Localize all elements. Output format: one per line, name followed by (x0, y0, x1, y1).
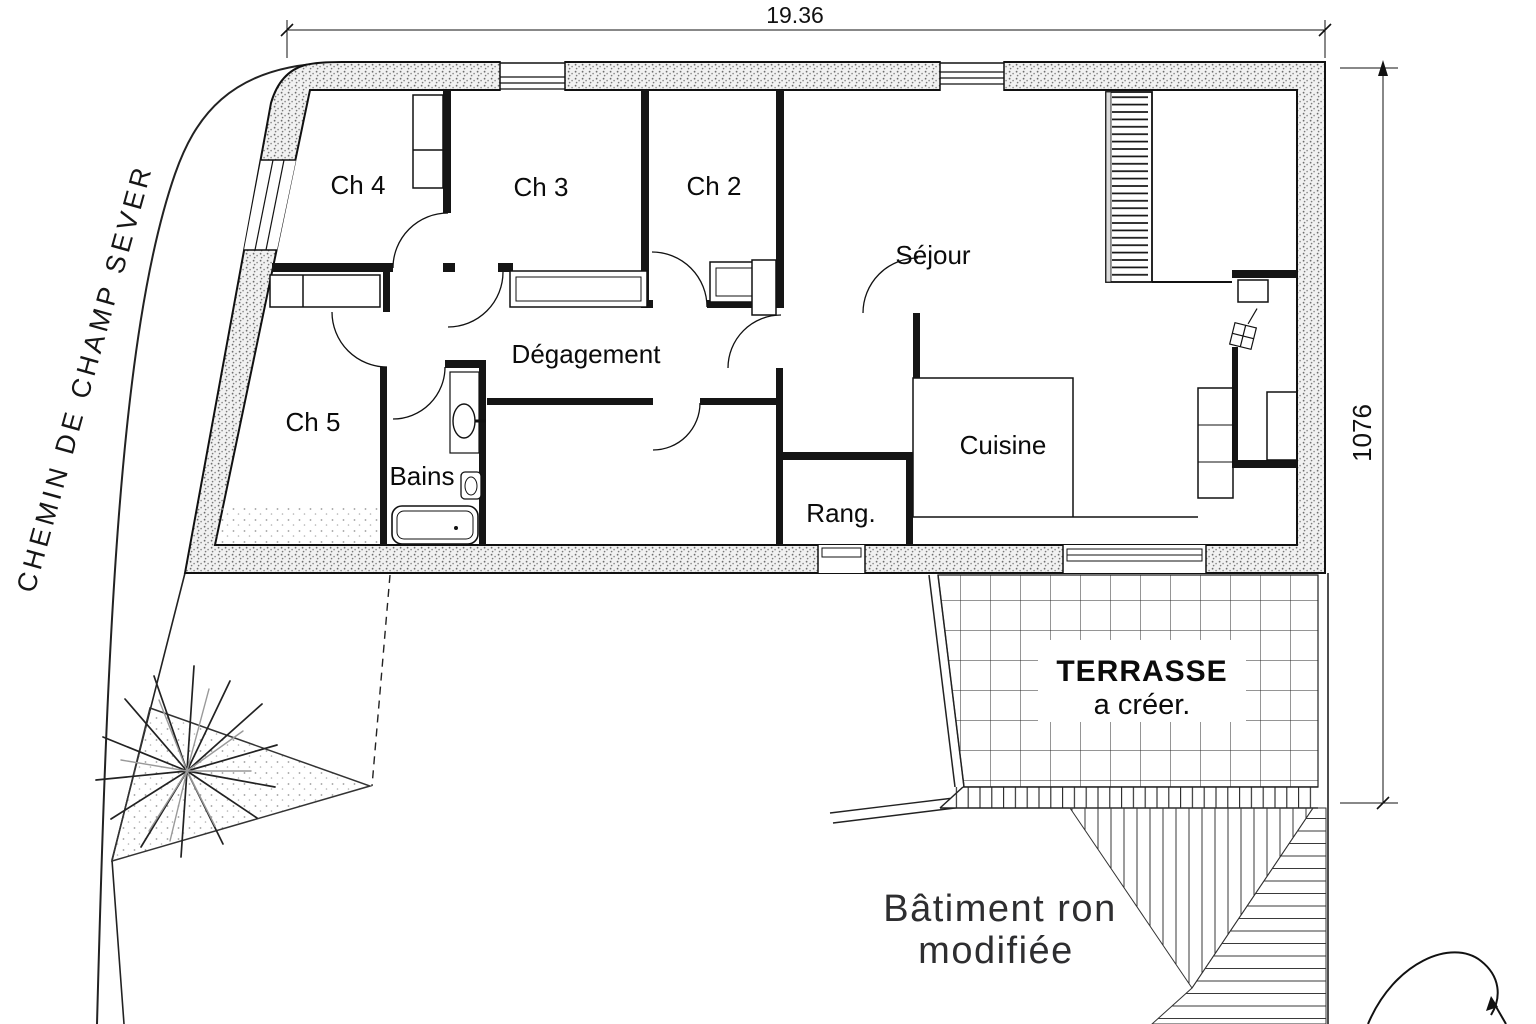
door-arcs (332, 213, 918, 450)
room-label-rang: Rang. (806, 498, 875, 528)
sliding-door-bottom (1063, 545, 1206, 573)
door-arc-ch2 (652, 252, 707, 307)
building (185, 61, 1325, 573)
sink-icon (453, 404, 475, 438)
door-arc-south-room (653, 403, 700, 450)
plot-boundary-dashed (372, 575, 390, 786)
kitchen-fittings (913, 280, 1297, 517)
dimension-right-label: 1076 (1347, 404, 1377, 462)
dimension-top-label: 19.36 (766, 2, 824, 28)
room-label-cuisine: Cuisine (960, 430, 1047, 460)
terrace-label: TERRASSE (1056, 655, 1227, 688)
room-label-bains: Bains (389, 461, 454, 491)
floor-plan-page: 19.36 1076 CHEMIN DE CHAMP SEVER Ch 4 Ch… (0, 0, 1536, 1024)
room-label-sejour: Séjour (895, 240, 970, 270)
floor-plan-drawing: 19.36 1076 CHEMIN DE CHAMP SEVER Ch 4 Ch… (0, 0, 1536, 1024)
garden-bed (96, 666, 370, 861)
note-line2: modifiée (918, 930, 1074, 972)
door-arc-sejour (728, 315, 781, 368)
staircase (1106, 92, 1152, 282)
room-label-ch5: Ch 5 (286, 407, 341, 437)
room-label-degagement: Dégagement (512, 339, 662, 369)
note-line1: Bâtiment ron (883, 888, 1116, 930)
room-label-ch4: Ch 4 (331, 170, 386, 200)
window-top-2 (940, 61, 1004, 91)
entry-door-bottom (818, 545, 865, 573)
room-label-ch3: Ch 3 (514, 172, 569, 202)
exterior-wall (185, 62, 1325, 573)
room-label-ch2: Ch 2 (687, 171, 742, 201)
garden-path-line-2 (833, 807, 963, 823)
door-arc-bains (393, 367, 445, 419)
boiler-icon (1230, 304, 1261, 349)
terrace-sublabel: a créer. (1094, 689, 1191, 721)
terrace-steps (940, 787, 1318, 808)
ch5-floor-texture (215, 505, 380, 545)
door-arc-ch4 (393, 213, 448, 268)
street-name-label: CHEMIN DE CHAMP SEVER (11, 160, 158, 595)
door-arc-ch3 (448, 272, 503, 327)
window-top-1 (500, 61, 565, 91)
annotation-arrow-icon (1368, 952, 1506, 1024)
door-arc-ch5 (332, 312, 387, 367)
